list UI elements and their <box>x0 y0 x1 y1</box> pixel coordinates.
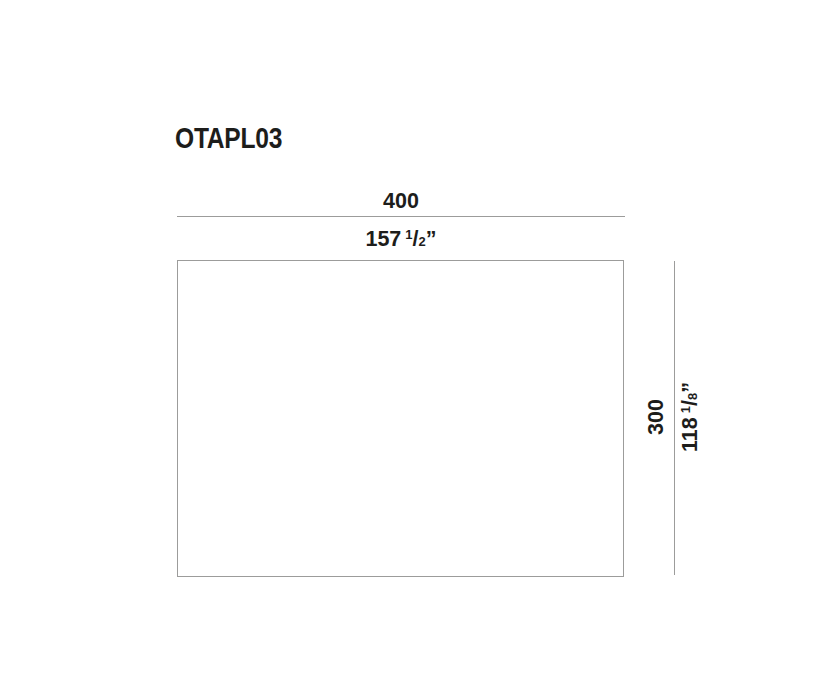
height-inch-frac-slash: / <box>678 400 702 406</box>
product-code: OTAPL03 <box>175 121 282 155</box>
height-mm-value: 300 <box>644 399 668 435</box>
width-mm-label: 400 <box>177 189 625 213</box>
height-inch-label: 1181/8” <box>674 382 705 452</box>
width-inch-whole: 157 <box>365 227 401 251</box>
height-inch-frac-numerator: 1 <box>678 406 693 413</box>
width-inch-frac-denominator: 2 <box>419 234 426 249</box>
width-inch-mark: ” <box>426 227 437 251</box>
width-inch-frac-numerator: 1 <box>405 227 412 242</box>
height-inch-mark: ” <box>678 382 702 393</box>
tabletop-outline <box>177 260 624 577</box>
height-inch-whole: 118 <box>678 417 702 452</box>
width-dimension-line <box>177 216 625 217</box>
width-inch-label: 1571/2” <box>177 221 625 256</box>
width-mm-value: 400 <box>383 189 419 213</box>
height-mm-label: 300 <box>644 399 668 435</box>
height-inch-frac-denominator: 8 <box>685 393 700 400</box>
product-dimension-drawing: OTAPL03 400 1571/2” 300 1181/8” <box>0 0 840 679</box>
